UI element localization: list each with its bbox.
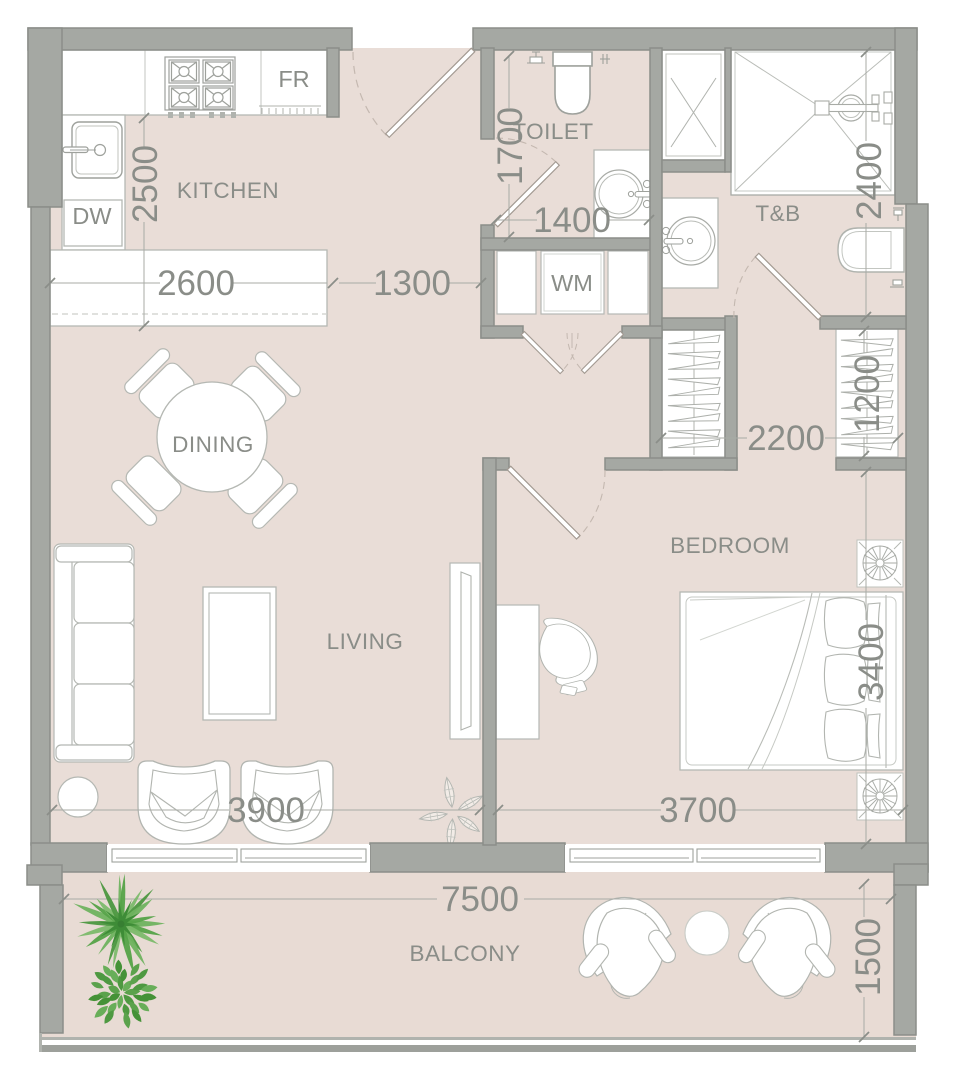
svg-text:T&B: T&B xyxy=(755,201,800,226)
svg-text:3700: 3700 xyxy=(659,791,737,830)
svg-text:KITCHEN: KITCHEN xyxy=(177,178,279,203)
svg-text:DINING: DINING xyxy=(172,432,254,457)
svg-text:7500: 7500 xyxy=(441,880,519,919)
svg-text:1700: 1700 xyxy=(491,107,530,185)
svg-text:DW: DW xyxy=(72,203,112,229)
svg-text:2500: 2500 xyxy=(126,145,165,223)
svg-text:1400: 1400 xyxy=(533,201,611,240)
svg-text:2600: 2600 xyxy=(157,264,235,303)
svg-text:3900: 3900 xyxy=(227,791,305,830)
svg-text:BEDROOM: BEDROOM xyxy=(670,533,790,558)
svg-text:3400: 3400 xyxy=(852,623,891,701)
svg-text:1300: 1300 xyxy=(373,264,451,303)
svg-text:WM: WM xyxy=(551,270,593,296)
svg-text:FR: FR xyxy=(278,66,309,92)
svg-text:LIVING: LIVING xyxy=(327,629,404,654)
svg-text:2200: 2200 xyxy=(747,419,825,458)
svg-text:1200: 1200 xyxy=(848,355,887,433)
svg-text:2400: 2400 xyxy=(850,142,889,220)
svg-text:BALCONY: BALCONY xyxy=(409,941,520,966)
svg-text:1500: 1500 xyxy=(849,918,888,996)
